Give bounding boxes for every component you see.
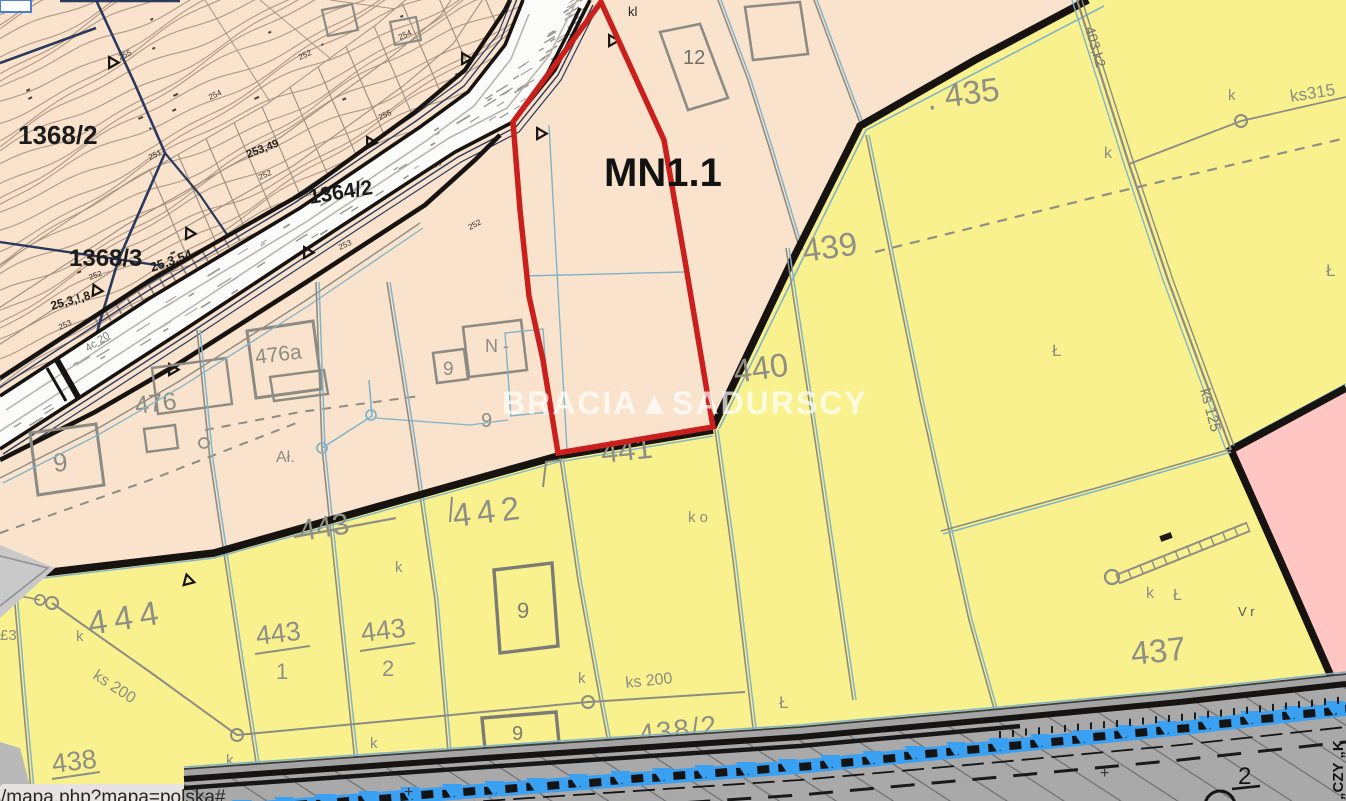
svg-text:1: 1 — [276, 659, 288, 684]
svg-text:„CZY „K: „CZY „K — [1330, 740, 1346, 800]
svg-text:k: k — [1104, 145, 1113, 162]
svg-text:BRACIA▲SADURSCY: BRACIA▲SADURSCY — [502, 385, 868, 421]
svg-text:1368/2: 1368/2 — [18, 120, 98, 150]
svg-text:439: 439 — [800, 225, 860, 269]
svg-text:443: 443 — [359, 613, 407, 648]
svg-text:k: k — [76, 628, 84, 645]
svg-text:/mapa.php?mapa=polska#: /mapa.php?mapa=polska# — [1, 787, 226, 801]
svg-text:9: 9 — [517, 598, 529, 623]
svg-text:437: 437 — [1129, 629, 1188, 672]
svg-text:k: k — [1228, 87, 1236, 104]
svg-text:443: 443 — [254, 616, 302, 651]
svg-text:12: 12 — [683, 47, 705, 69]
svg-text:+: + — [404, 784, 413, 801]
svg-text:k: k — [395, 559, 403, 576]
svg-text:Ł: Ł — [779, 693, 788, 712]
svg-text:MN1.1: MN1.1 — [604, 151, 722, 195]
svg-text:Ał.: Ał. — [276, 449, 295, 466]
svg-text:k: k — [370, 735, 378, 752]
svg-text:440: 440 — [731, 346, 791, 390]
svg-text:9: 9 — [443, 359, 454, 380]
svg-text:2: 2 — [382, 656, 394, 681]
svg-text:9: 9 — [481, 410, 492, 432]
svg-text:+: + — [1100, 765, 1109, 782]
svg-text:k: k — [1146, 585, 1155, 602]
svg-text:Ł: Ł — [1326, 261, 1335, 280]
svg-text:kl: kl — [628, 4, 638, 19]
svg-text:k o: k o — [688, 509, 708, 526]
svg-text:1368/3: 1368/3 — [69, 245, 142, 272]
svg-text:Ł: Ł — [1052, 341, 1061, 360]
svg-text:£3: £3 — [0, 627, 17, 644]
svg-text:Ł: Ł — [1173, 587, 1182, 604]
svg-text:V r: V r — [1238, 604, 1255, 619]
svg-text:9: 9 — [512, 723, 523, 745]
svg-text:k: k — [578, 670, 586, 687]
